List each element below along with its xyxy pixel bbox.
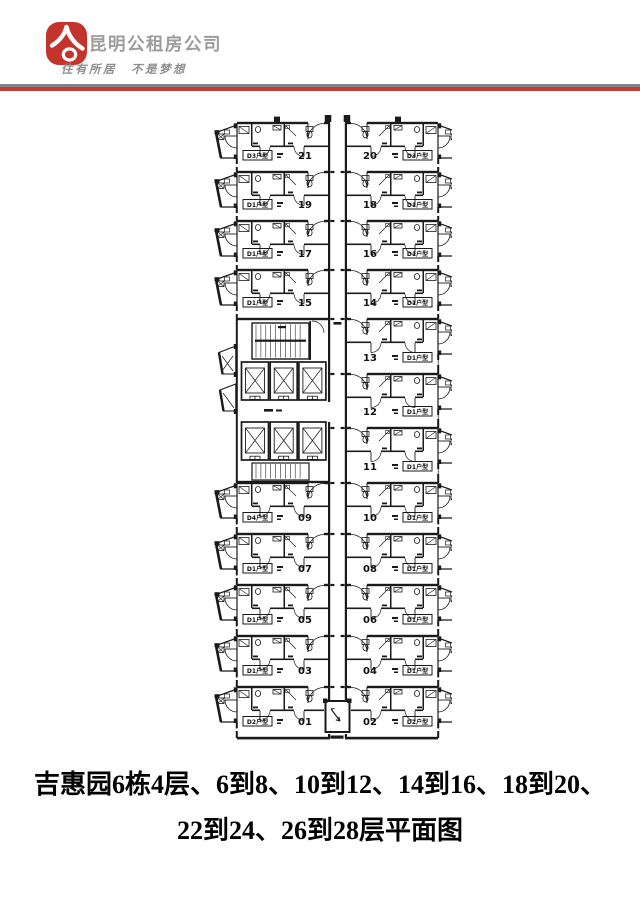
svg-text:D1户型: D1户型 — [247, 299, 268, 307]
header-divider — [0, 84, 640, 91]
svg-text:D4户型: D4户型 — [247, 514, 268, 522]
unit-14: D1户型14 — [345, 269, 452, 319]
unit-10: D1户型10 — [345, 482, 452, 534]
unit-07: D1户型07 — [215, 533, 331, 585]
svg-text:D1户型: D1户型 — [407, 565, 428, 573]
svg-text:14: 14 — [363, 298, 377, 309]
svg-text:07: 07 — [298, 564, 312, 575]
svg-text:02: 02 — [363, 717, 377, 728]
svg-text:20: 20 — [363, 151, 377, 162]
svg-text:15: 15 — [298, 298, 312, 309]
svg-text:19: 19 — [298, 200, 312, 211]
svg-text:18: 18 — [363, 200, 377, 211]
company-slogan: 住有所居 不是梦想 — [61, 61, 187, 77]
title-line-2: 22到24、26到28层平面图 — [0, 808, 640, 854]
svg-text:D1户型: D1户型 — [407, 250, 428, 258]
company-name: 昆明公租房公司 — [89, 31, 222, 56]
logo-icon — [45, 20, 88, 67]
unit-16: D1户型16 — [345, 220, 452, 270]
unit-05: D1户型05 — [215, 584, 331, 636]
svg-text:D3户型: D3户型 — [407, 152, 428, 160]
floor-plan-svg: D3户型21D1户型19D1户型17D1户型15D4户型09D1户型07D1户型… — [208, 108, 452, 748]
svg-text:D1户型: D1户型 — [407, 463, 428, 471]
svg-text:06: 06 — [363, 615, 377, 626]
svg-text:D1户型: D1户型 — [407, 354, 428, 362]
svg-text:D3户型: D3户型 — [247, 152, 268, 160]
unit-18: D1户型18 — [345, 171, 452, 221]
svg-text:D1户型: D1户型 — [407, 667, 428, 675]
unit-17: D1户型17 — [215, 220, 331, 270]
unit-13: D1户型13 — [345, 318, 452, 374]
svg-text:D1户型: D1户型 — [407, 616, 428, 624]
unit-11: D1户型11 — [345, 427, 452, 483]
unit-12: D1户型12 — [345, 373, 452, 428]
unit-02: D2户型02 — [345, 686, 452, 738]
page-title: 吉惠园6栋4层、6到8、10到12、14到16、18到20、 22到24、26到… — [0, 762, 640, 854]
svg-text:17: 17 — [298, 249, 312, 260]
unit-20: D3户型20 — [345, 122, 452, 172]
svg-text:04: 04 — [363, 666, 377, 677]
svg-text:D1户型: D1户型 — [247, 250, 268, 258]
svg-text:08: 08 — [363, 564, 377, 575]
unit-01: D2户型01 — [215, 686, 331, 738]
company-logo — [45, 20, 88, 67]
svg-text:D1户型: D1户型 — [407, 201, 428, 209]
unit-09: D4户型09 — [215, 482, 331, 534]
svg-text:10: 10 — [363, 513, 377, 524]
svg-text:05: 05 — [298, 615, 312, 626]
unit-19: D1户型19 — [215, 171, 331, 221]
core-stairs-elevators — [219, 318, 330, 483]
unit-08: D1户型08 — [345, 533, 452, 585]
svg-text:09: 09 — [298, 513, 312, 524]
svg-text:D1户型: D1户型 — [407, 299, 428, 307]
unit-04: D1户型04 — [345, 635, 452, 687]
svg-text:D1户型: D1户型 — [407, 514, 428, 522]
svg-text:D1户型: D1户型 — [247, 616, 268, 624]
svg-text:03: 03 — [298, 666, 312, 677]
svg-text:01: 01 — [298, 717, 312, 728]
svg-text:D2户型: D2户型 — [247, 718, 268, 726]
service-room — [323, 699, 352, 739]
svg-text:D1户型: D1户型 — [247, 565, 268, 573]
floor-plan: D3户型21D1户型19D1户型17D1户型15D4户型09D1户型07D1户型… — [208, 108, 452, 748]
svg-text:11: 11 — [363, 462, 377, 473]
svg-text:13: 13 — [363, 353, 377, 364]
unit-03: D1户型03 — [215, 635, 331, 687]
svg-text:21: 21 — [298, 151, 312, 162]
page: 昆明公租房公司 住有所居 不是梦想 D3户型21D1户型19D1户型17D1户型… — [0, 0, 640, 905]
unit-15: D1户型15 — [215, 269, 331, 319]
svg-text:12: 12 — [363, 407, 377, 418]
svg-text:D1户型: D1户型 — [247, 201, 268, 209]
svg-text:16: 16 — [363, 249, 377, 260]
svg-text:D1户型: D1户型 — [247, 667, 268, 675]
unit-21: D3户型21 — [215, 122, 331, 172]
svg-text:D2户型: D2户型 — [407, 718, 428, 726]
divider-red-bar — [0, 87, 640, 91]
svg-text:D1户型: D1户型 — [407, 408, 428, 416]
unit-06: D1户型06 — [345, 584, 452, 636]
title-line-1: 吉惠园6栋4层、6到8、10到12、14到16、18到20、 — [0, 762, 640, 808]
